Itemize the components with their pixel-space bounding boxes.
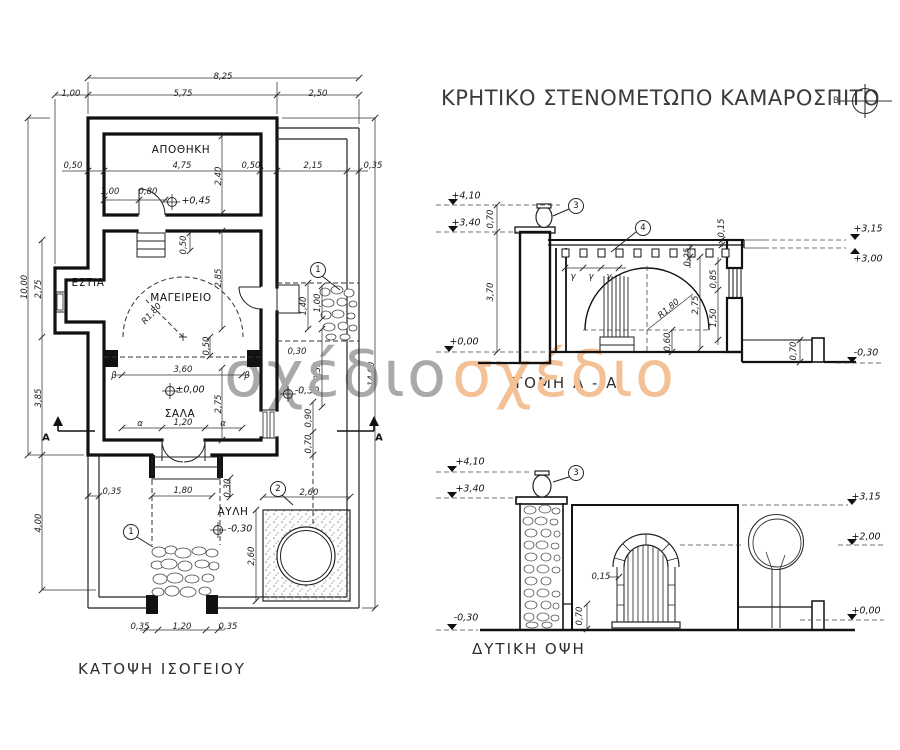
plan-wall-fills <box>104 350 261 614</box>
elevation-dashed <box>436 472 884 630</box>
plan-well <box>263 510 350 601</box>
plan-stone-bench <box>320 286 357 340</box>
elevation-jar <box>533 471 551 497</box>
elevation-tree <box>749 515 804 629</box>
elevation-callout-circle <box>553 466 584 483</box>
section-dashed <box>436 205 884 363</box>
section-level-markers <box>444 199 860 363</box>
section-callout-circles <box>553 199 651 253</box>
section-structure <box>478 227 856 363</box>
plan-section-cut-markers <box>53 416 379 431</box>
section-door <box>600 275 634 352</box>
section-jar <box>536 204 552 228</box>
section-beams <box>562 249 729 257</box>
plan-arch-dashed <box>104 277 359 545</box>
drawing-sheet: σχέδιο σχέδιο <box>0 0 900 750</box>
elevation-chimney-stones <box>523 505 560 628</box>
north-icon <box>838 84 892 118</box>
plan-callout-circles <box>124 263 341 548</box>
elevation-dim-ticks <box>584 574 622 632</box>
plan-stone-path <box>151 546 219 597</box>
elevation-door <box>612 534 680 628</box>
drawing-canvas <box>0 0 900 750</box>
elevation-level-markers <box>447 466 857 630</box>
elevation-dim-lines <box>587 577 619 629</box>
